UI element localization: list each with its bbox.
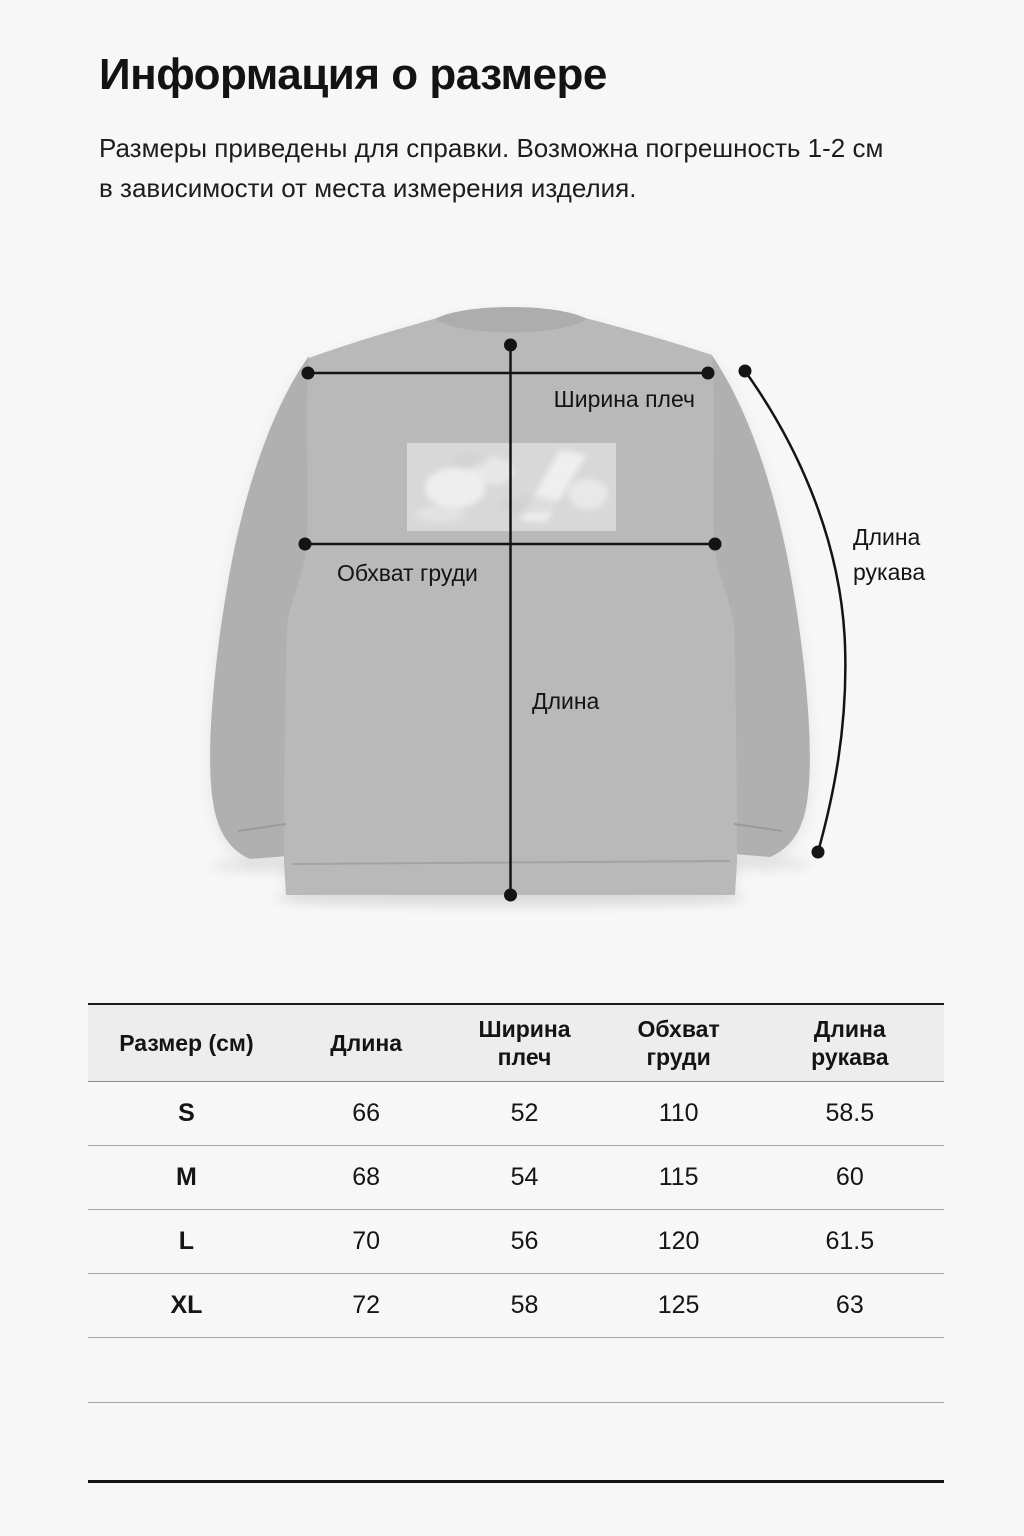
- cell-sleeve: 63: [756, 1273, 944, 1337]
- col-header-size: Размер (см): [88, 1004, 285, 1081]
- measure-dot: [504, 339, 517, 352]
- cell-size: M: [88, 1145, 285, 1209]
- measure-dot: [299, 538, 312, 551]
- page-subtitle: Размеры приведены для справки. Возможна …: [99, 128, 959, 208]
- cell-chest: 125: [602, 1273, 756, 1337]
- cell-length: 66: [285, 1081, 448, 1145]
- table-row-m: M 68 54 115 60: [88, 1145, 944, 1209]
- cell-length: 68: [285, 1145, 448, 1209]
- cell-size: XL: [88, 1273, 285, 1337]
- table-header-row: Размер (см) Длина Ширина плеч Обхват гру…: [88, 1004, 944, 1081]
- empty-row: [88, 1402, 944, 1481]
- sleeve-length-label-line1: Длина: [853, 524, 921, 550]
- size-table-section: Размер (см) Длина Ширина плеч Обхват гру…: [88, 1003, 944, 1483]
- cell-sleeve: 61.5: [756, 1209, 944, 1273]
- length-label: Длина: [532, 688, 600, 714]
- cell-size: L: [88, 1209, 285, 1273]
- col-header-shoulder: Ширина плеч: [448, 1004, 602, 1081]
- col-header-sleeve: Длина рукава: [756, 1004, 944, 1081]
- measure-dot: [504, 889, 517, 902]
- subtitle-line-2: в зависимости от места измерения изделия…: [99, 173, 636, 203]
- shoulder-width-label: Ширина плеч: [554, 386, 695, 412]
- col-header-chest: Обхват груди: [602, 1004, 756, 1081]
- size-table: Размер (см) Длина Ширина плеч Обхват гру…: [88, 1003, 944, 1483]
- cell-shoulder: 56: [448, 1209, 602, 1273]
- cell-sleeve: 60: [756, 1145, 944, 1209]
- subtitle-line-1: Размеры приведены для справки. Возможна …: [99, 133, 883, 163]
- table-row-xl: XL 72 58 125 63: [88, 1273, 944, 1337]
- measure-dot: [702, 367, 715, 380]
- cell-chest: 110: [602, 1081, 756, 1145]
- table-row-l: L 70 56 120 61.5: [88, 1209, 944, 1273]
- cell-chest: 120: [602, 1209, 756, 1273]
- cell-shoulder: 58: [448, 1273, 602, 1337]
- measure-dot: [739, 365, 752, 378]
- measure-dot: [812, 846, 825, 859]
- cell-chest: 115: [602, 1145, 756, 1209]
- cell-sleeve: 58.5: [756, 1081, 944, 1145]
- page-title: Информация о размере: [99, 50, 959, 100]
- cell-size: S: [88, 1081, 285, 1145]
- cell-length: 70: [285, 1209, 448, 1273]
- page-header: Информация о размере Размеры приведены д…: [99, 50, 959, 208]
- cell-shoulder: 52: [448, 1081, 602, 1145]
- chest-label: Обхват груди: [337, 560, 478, 586]
- size-diagram: Ширина плеч Обхват груди Длина Длина рук…: [0, 268, 1024, 968]
- table-row-s: S 66 52 110 58.5: [88, 1081, 944, 1145]
- measure-dot: [302, 367, 315, 380]
- cell-length: 72: [285, 1273, 448, 1337]
- measure-dot: [709, 538, 722, 551]
- cell-shoulder: 54: [448, 1145, 602, 1209]
- empty-row: [88, 1337, 944, 1402]
- sleeve-length-label-line2: рукава: [853, 559, 925, 585]
- col-header-length: Длина: [285, 1004, 448, 1081]
